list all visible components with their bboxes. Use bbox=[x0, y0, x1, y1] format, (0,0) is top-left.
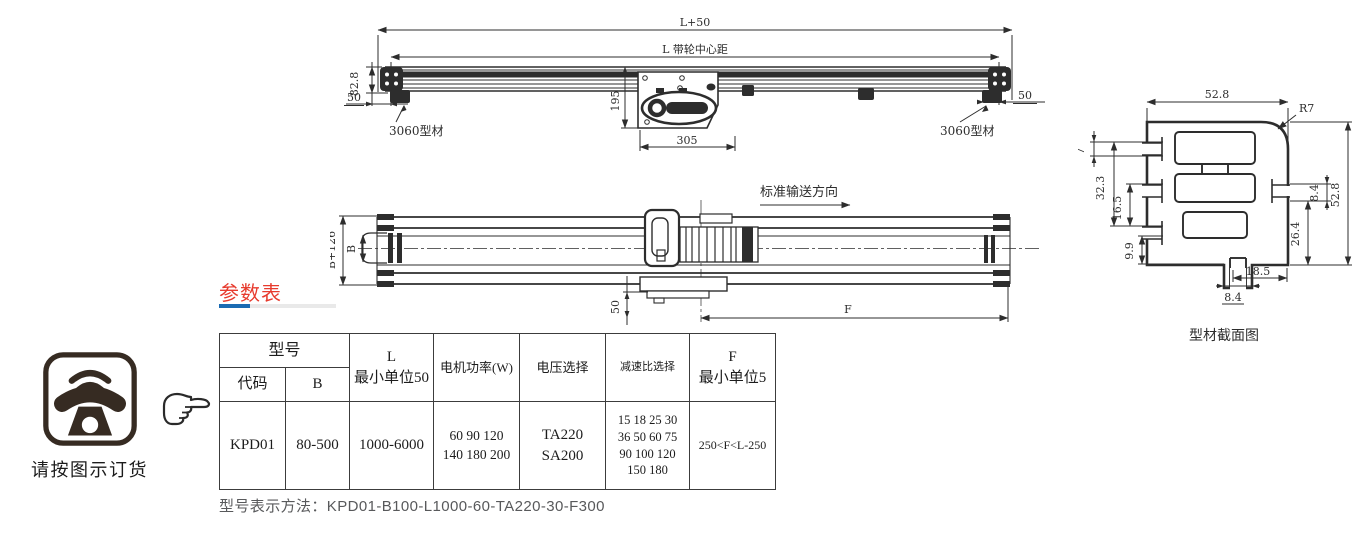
dim-50-plan: 50 bbox=[609, 300, 622, 314]
dim-195: 195 bbox=[609, 91, 622, 112]
dim-7: 7 bbox=[1078, 148, 1087, 155]
drive-unit bbox=[638, 72, 718, 128]
params-table-title: 参数表 bbox=[219, 277, 282, 306]
dim-18-5: 18.5 bbox=[1246, 265, 1271, 278]
table-row: KPD01 80-500 1000-6000 60 90 120 140 180… bbox=[220, 402, 776, 490]
dim-f: F bbox=[844, 303, 852, 316]
cell-f: 250<F<L-250 bbox=[690, 402, 776, 490]
col-header-voltage: 电压选择 bbox=[520, 334, 606, 402]
plan-drive-unit bbox=[640, 210, 758, 303]
col-header-ratio: 减速比选择 bbox=[606, 334, 690, 402]
dim-16-5: 16.5 bbox=[1111, 196, 1124, 221]
col-header-model: 型号 bbox=[220, 334, 350, 368]
cell-voltage: TA220 SA200 bbox=[520, 402, 606, 490]
cell-b: 80-500 bbox=[286, 402, 350, 490]
dim-50-left: 50 bbox=[347, 91, 361, 104]
dim-9-9: 9.9 bbox=[1123, 242, 1136, 260]
order-instruction: 请按图示订货 bbox=[31, 456, 148, 482]
dim-8-4-right: 8.4 bbox=[1308, 184, 1321, 202]
dim-32-3: 32.3 bbox=[1094, 176, 1107, 201]
dim-pulley-center: L 带轮中心距 bbox=[662, 42, 728, 56]
belt-tongue bbox=[362, 233, 387, 263]
title-underline bbox=[219, 304, 336, 308]
profile-outline bbox=[1147, 122, 1288, 288]
dim-50-right: 50 bbox=[1018, 89, 1032, 102]
section-caption: 型材截面图 bbox=[1189, 328, 1259, 344]
params-table: 型号 L 最小单位50 电机功率(W) 电压选择 减速比选择 F 最小单位5 代… bbox=[219, 333, 776, 490]
dim-52-8-right: 52.8 bbox=[1329, 183, 1342, 208]
dim-b: B bbox=[345, 245, 358, 253]
dim-305: 305 bbox=[677, 134, 698, 147]
col-header-power: 电机功率(W) bbox=[434, 334, 520, 402]
phone-dial bbox=[82, 417, 98, 433]
catalog-page: L+50 L 带轮中心距 82.8 50 50 195 305 3060型材 3… bbox=[0, 0, 1370, 537]
dim-r7: R7 bbox=[1299, 102, 1314, 115]
model-notation-note: 型号表示方法：KPD01-B100-L1000-60-TA220-30-F300 bbox=[219, 495, 605, 516]
cell-l: 1000-6000 bbox=[350, 402, 434, 490]
label-3060-right: 3060型材 bbox=[940, 124, 995, 138]
cell-code: KPD01 bbox=[220, 402, 286, 490]
section-view-drawing: 52.8 R7 7 32.3 16.5 9.9 8.4 26.4 52.8 18… bbox=[1078, 68, 1370, 360]
dim-b-plus-126: B+126 bbox=[330, 231, 338, 269]
direction-label: 标准输送方向 bbox=[760, 184, 838, 200]
dim-8-4-bottom: 8.4 bbox=[1224, 291, 1242, 304]
pointing-hand-icon bbox=[156, 388, 212, 432]
phone-handset bbox=[62, 394, 118, 404]
col-header-f: F 最小单位5 bbox=[690, 334, 776, 402]
title-underline-accent bbox=[219, 304, 250, 308]
cell-power: 60 90 120 140 180 200 bbox=[434, 402, 520, 490]
dim-26-4: 26.4 bbox=[1289, 222, 1302, 247]
front-view-drawing: L+50 L 带轮中心距 82.8 50 50 195 305 3060型材 3… bbox=[338, 8, 1068, 166]
cell-ratio: 15 18 25 30 36 50 60 75 90 100 120 150 1… bbox=[606, 402, 690, 490]
label-3060-left: 3060型材 bbox=[389, 124, 444, 138]
col-header-code: 代码 bbox=[220, 368, 286, 402]
telephone-icon bbox=[42, 351, 138, 447]
col-header-b: B bbox=[286, 368, 350, 402]
plan-view-drawing: 标准输送方向 bbox=[330, 172, 1052, 332]
dim-52-8-top: 52.8 bbox=[1205, 88, 1230, 101]
dim-l-plus-50: L+50 bbox=[680, 16, 711, 29]
col-header-l: L 最小单位50 bbox=[350, 334, 434, 402]
